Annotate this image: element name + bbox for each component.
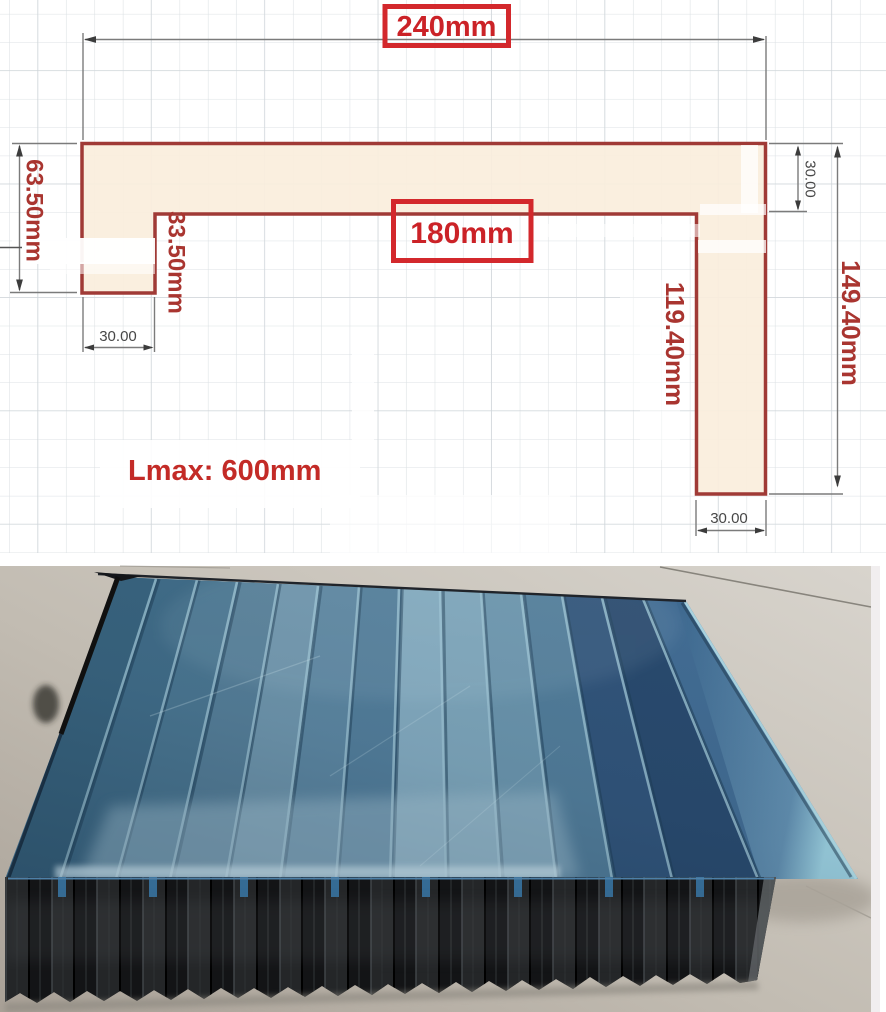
- svg-text:30.00: 30.00: [710, 510, 748, 527]
- svg-text:33.50mm: 33.50mm: [163, 211, 190, 314]
- svg-text:30.00: 30.00: [802, 160, 819, 198]
- svg-text:180mm: 180mm: [410, 217, 513, 250]
- svg-text:119.40mm: 119.40mm: [660, 282, 690, 406]
- svg-text:30.00: 30.00: [99, 328, 137, 345]
- svg-text:240mm: 240mm: [397, 11, 497, 43]
- svg-text:63.50mm: 63.50mm: [21, 159, 48, 262]
- svg-text:149.40mm: 149.40mm: [836, 260, 866, 386]
- svg-text:Lmax: 600mm: Lmax: 600mm: [128, 455, 321, 487]
